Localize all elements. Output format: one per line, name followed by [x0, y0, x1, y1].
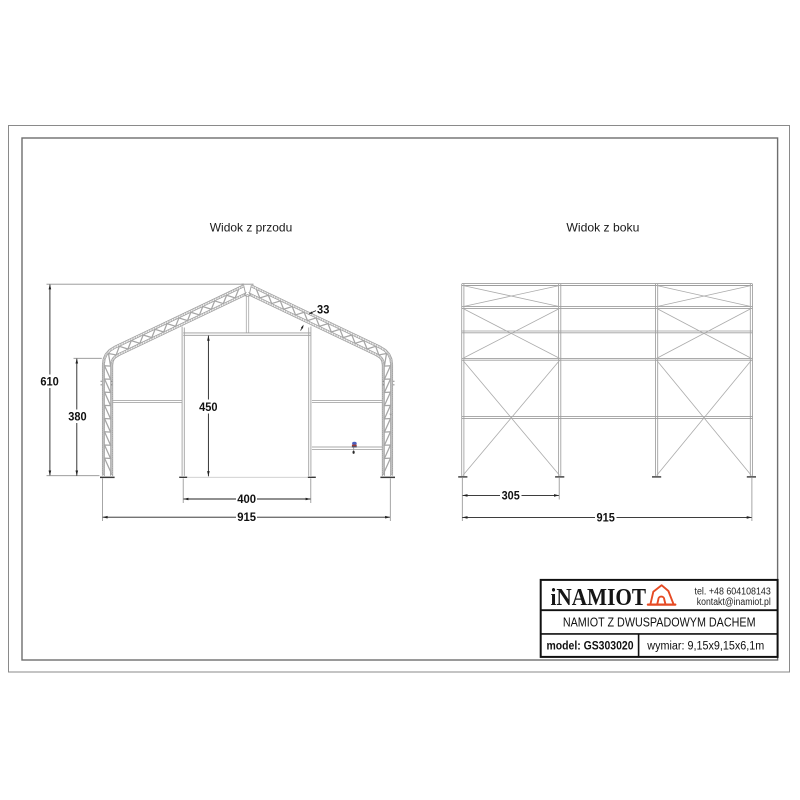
svg-text:model: GS303020: model: GS303020: [547, 641, 634, 653]
svg-text:610: 610: [40, 377, 58, 389]
svg-text:tel. +48 604108143: tel. +48 604108143: [695, 586, 772, 597]
svg-text:400: 400: [237, 494, 256, 506]
svg-text:Widok z przodu: Widok z przodu: [210, 221, 293, 235]
svg-text:Widok z boku: Widok z boku: [566, 221, 639, 235]
svg-text:450: 450: [199, 402, 217, 414]
svg-text:iNAMIOT: iNAMIOT: [551, 584, 647, 611]
svg-text:305: 305: [502, 491, 521, 503]
svg-text:33: 33: [317, 305, 329, 317]
svg-text:wymiar: 9,15x9,15x6,1m: wymiar: 9,15x9,15x6,1m: [646, 641, 764, 653]
svg-text:915: 915: [237, 512, 256, 524]
svg-text:kontakt@inamiot.pl: kontakt@inamiot.pl: [697, 597, 771, 608]
svg-text:NAMIOT Z DWUSPADOWYM DACHEM: NAMIOT Z DWUSPADOWYM DACHEM: [563, 614, 756, 629]
svg-text:915: 915: [597, 513, 616, 525]
svg-text:380: 380: [68, 412, 86, 424]
